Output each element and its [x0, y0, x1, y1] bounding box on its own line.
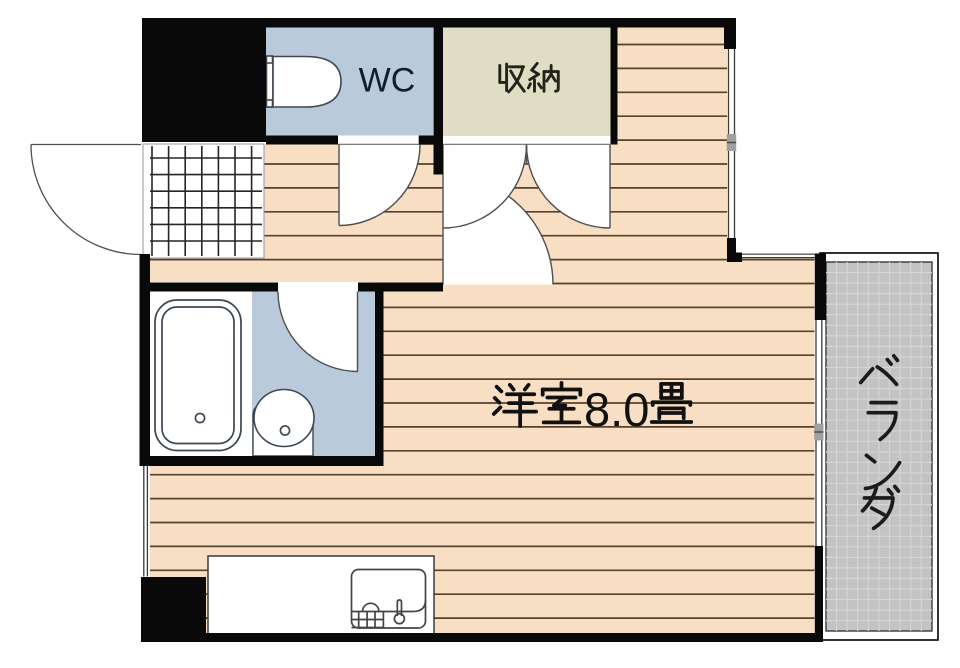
svg-text:WC: WC: [359, 62, 416, 100]
svg-text:8.0: 8.0: [584, 383, 649, 436]
